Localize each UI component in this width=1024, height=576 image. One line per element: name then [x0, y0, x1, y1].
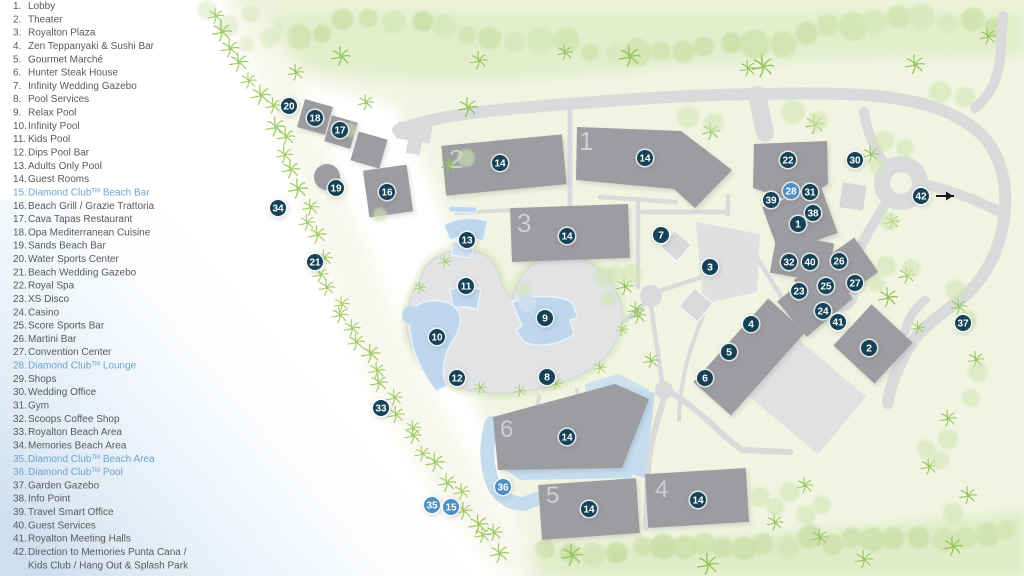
svg-text:28: 28: [785, 187, 797, 198]
svg-text:12: 12: [451, 374, 463, 385]
svg-text:32.Scoops Coffee Shop: 32.Scoops Coffee Shop: [13, 414, 120, 425]
svg-text:11.Kids Pool: 11.Kids Pool: [13, 134, 70, 145]
svg-text:1: 1: [579, 126, 593, 156]
svg-text:6: 6: [500, 416, 513, 443]
svg-text:14: 14: [561, 433, 573, 444]
svg-text:32: 32: [783, 258, 795, 269]
svg-text:14: 14: [561, 232, 573, 243]
svg-text:24.Casino: 24.Casino: [13, 307, 60, 318]
svg-text:27.Convention Center: 27.Convention Center: [13, 347, 112, 358]
svg-text:14: 14: [583, 505, 595, 516]
svg-text:5: 5: [726, 347, 732, 359]
svg-text:12.Dips Pool Bar: 12.Dips Pool Bar: [13, 148, 90, 159]
svg-text:36.Diamond ClubTM Pool: 36.Diamond ClubTM Pool: [13, 467, 123, 478]
svg-text:27: 27: [849, 279, 861, 290]
svg-text:36: 36: [497, 483, 509, 494]
svg-text:42: 42: [915, 192, 927, 203]
svg-text:26: 26: [833, 257, 845, 268]
svg-text:15: 15: [445, 503, 457, 514]
svg-text:3: 3: [707, 262, 713, 274]
svg-text:14.Guest Rooms: 14.Guest Rooms: [13, 174, 89, 185]
svg-text:1: 1: [795, 219, 801, 231]
svg-text:17.Cava Tapas Restaurant: 17.Cava Tapas Restaurant: [13, 214, 133, 225]
svg-text:18: 18: [309, 114, 321, 125]
svg-text:13: 13: [461, 236, 473, 247]
svg-text:35: 35: [426, 501, 438, 512]
svg-text:22: 22: [782, 156, 794, 167]
svg-text:38.Info Point: 38.Info Point: [13, 494, 70, 505]
svg-text:42.Direction to Memories Punta: 42.Direction to Memories Punta Cana /: [13, 547, 187, 558]
svg-text:17: 17: [334, 126, 346, 137]
svg-text:14: 14: [639, 154, 651, 165]
svg-text:21: 21: [309, 258, 321, 269]
svg-text:28.Diamond ClubTM Lounge: 28.Diamond ClubTM Lounge: [13, 361, 137, 372]
svg-text:10: 10: [431, 333, 443, 344]
svg-text:16.Beach Grill / Grazie Tratto: 16.Beach Grill / Grazie Trattoria: [13, 201, 155, 212]
svg-text:33: 33: [375, 404, 387, 415]
svg-text:40: 40: [804, 258, 816, 269]
svg-text:10.Infinity Pool: 10.Infinity Pool: [13, 121, 80, 132]
svg-text:Kids Club / Hang Out & Splash: Kids Club / Hang Out & Splash Park: [28, 560, 189, 571]
svg-text:22.Royal Spa: 22.Royal Spa: [13, 281, 75, 292]
svg-text:2.Theater: 2.Theater: [13, 14, 63, 25]
svg-text:6: 6: [702, 373, 708, 385]
svg-text:20.Water Sports Center: 20.Water Sports Center: [13, 254, 119, 265]
svg-text:34: 34: [272, 204, 284, 215]
svg-text:4: 4: [655, 476, 668, 503]
svg-text:18.Opa Mediterranean Cuisine: 18.Opa Mediterranean Cuisine: [13, 227, 151, 238]
svg-text:3: 3: [517, 208, 531, 238]
svg-text:30.Wedding Office: 30.Wedding Office: [13, 387, 96, 398]
svg-text:37: 37: [957, 319, 969, 330]
svg-text:41.Royalton Meeting Halls: 41.Royalton Meeting Halls: [13, 534, 131, 545]
svg-text:20: 20: [283, 102, 295, 113]
svg-text:15.Diamond ClubTM Beach Bar: 15.Diamond ClubTM Beach Bar: [13, 187, 150, 198]
svg-text:26.Martini Bar: 26.Martini Bar: [13, 334, 77, 345]
svg-text:2: 2: [866, 343, 872, 355]
svg-text:23: 23: [793, 287, 805, 298]
svg-text:16: 16: [381, 188, 393, 199]
svg-text:31.Gym: 31.Gym: [13, 401, 49, 412]
svg-text:5: 5: [546, 482, 559, 509]
svg-text:29.Shops: 29.Shops: [13, 374, 56, 385]
svg-text:24: 24: [817, 307, 829, 318]
svg-text:23.XS Disco: 23.XS Disco: [13, 294, 70, 305]
svg-text:14: 14: [494, 159, 506, 170]
svg-text:7: 7: [658, 230, 664, 242]
svg-text:4: 4: [748, 319, 754, 331]
svg-text:14: 14: [692, 496, 704, 507]
svg-text:39: 39: [765, 196, 777, 207]
svg-text:38: 38: [807, 209, 819, 220]
svg-text:6.Hunter Steak House: 6.Hunter Steak House: [13, 68, 118, 79]
svg-text:39.Travel Smart Office: 39.Travel Smart Office: [13, 507, 114, 518]
svg-text:9: 9: [542, 313, 548, 325]
svg-text:30: 30: [849, 156, 861, 167]
svg-text:7.Infinity Wedding Gazebo: 7.Infinity Wedding Gazebo: [13, 81, 137, 92]
svg-text:11: 11: [461, 282, 472, 293]
svg-text:21.Beach Wedding Gazebo: 21.Beach Wedding Gazebo: [13, 267, 137, 278]
svg-text:8: 8: [544, 372, 550, 384]
svg-text:33.Royalton Beach Area: 33.Royalton Beach Area: [13, 427, 122, 438]
svg-text:19: 19: [330, 184, 342, 195]
svg-text:4.Zen Teppanyaki & Sushi Bar: 4.Zen Teppanyaki & Sushi Bar: [13, 41, 155, 52]
svg-text:40.Guest Services: 40.Guest Services: [13, 520, 96, 531]
svg-text:41: 41: [832, 318, 844, 329]
svg-text:31: 31: [804, 188, 816, 199]
svg-text:1.Lobby: 1.Lobby: [13, 1, 55, 12]
svg-text:13.Adults Only Pool: 13.Adults Only Pool: [13, 161, 102, 172]
svg-text:19.Sands Beach Bar: 19.Sands Beach Bar: [13, 241, 106, 252]
svg-text:25.Score Sports Bar: 25.Score Sports Bar: [13, 321, 105, 332]
svg-text:35.Diamond ClubTM Beach Area: 35.Diamond ClubTM Beach Area: [13, 454, 155, 465]
svg-text:25: 25: [820, 282, 832, 293]
svg-text:34.Memories Beach Area: 34.Memories Beach Area: [13, 441, 127, 452]
svg-text:37.Garden Gazebo: 37.Garden Gazebo: [13, 480, 100, 491]
